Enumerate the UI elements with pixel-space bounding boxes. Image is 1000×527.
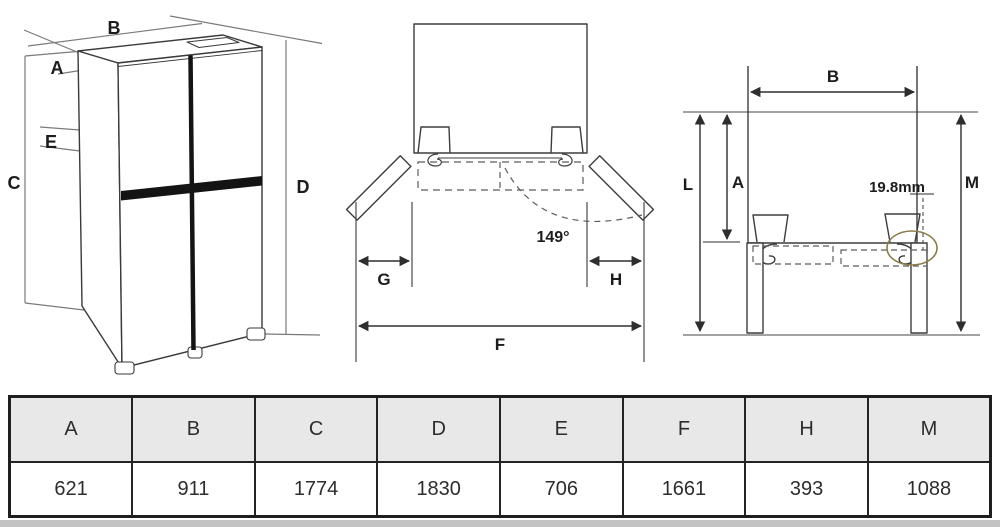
value-h: 393 [745, 462, 868, 517]
label-opening-angle: 149° [536, 229, 569, 246]
fridge-top-outline [347, 24, 654, 220]
value-d: 1830 [377, 462, 500, 517]
clearance-top-view-diagram: B L A M 19.8mm [683, 66, 980, 335]
label-dim-e: E [45, 132, 57, 152]
label-dim-l: L [683, 175, 693, 194]
doors-open-top-view-diagram: G H F 149° [347, 24, 654, 362]
col-header-f: F [623, 397, 746, 463]
value-e: 706 [500, 462, 623, 517]
label-dim-h: H [610, 270, 622, 289]
dim-line-d [264, 40, 320, 335]
label-dim-b: B [108, 18, 121, 38]
table-header-row: A B C D E F H M [10, 397, 991, 463]
label-dim-c: C [8, 173, 21, 193]
col-header-m: M [868, 397, 991, 463]
dimension-diagrams: B A E C D [0, 0, 1000, 395]
left-hinge-hook [428, 154, 441, 166]
appliance-dimension-sheet: B A E C D [0, 0, 1000, 527]
fridge-side-face [78, 51, 122, 368]
front-right-foot [247, 328, 265, 340]
right-door-90deg [911, 243, 927, 333]
value-b: 911 [132, 462, 255, 517]
label-dim-a: A [732, 173, 744, 192]
value-c: 1774 [255, 462, 378, 517]
front-left-foot [115, 362, 134, 374]
ghf-dimension-arrows [359, 261, 641, 326]
label-dim-d: D [297, 177, 310, 197]
cabinet-outline [414, 24, 587, 153]
label-dim-g: G [377, 270, 390, 289]
vertical-door-divider [191, 56, 194, 351]
right-hinge-bracket [885, 214, 920, 242]
value-m: 1088 [868, 462, 991, 517]
left-hinge-bracket [753, 215, 788, 242]
col-header-h: H [745, 397, 868, 463]
col-header-c: C [255, 397, 378, 463]
label-dim-m: M [965, 173, 979, 192]
cabinet-and-doors [747, 66, 927, 333]
dimension-table: A B C D E F H M 621 911 1774 1830 706 16… [8, 395, 992, 518]
value-a: 621 [10, 462, 133, 517]
dim-c-ticks [25, 52, 84, 311]
label-hinge-offset: 19.8mm [869, 179, 925, 196]
right-hinge-hook [559, 154, 572, 166]
label-dim-b: B [827, 67, 839, 86]
left-door-90deg [747, 243, 763, 333]
col-header-d: D [377, 397, 500, 463]
col-header-a: A [10, 397, 133, 463]
col-header-b: B [132, 397, 255, 463]
table-value-row: 621 911 1774 1830 706 1661 393 1088 [10, 462, 991, 517]
page-bottom-edge [0, 520, 1000, 527]
value-f: 1661 [623, 462, 746, 517]
label-dim-a: A [51, 58, 64, 78]
fridge-3d-body [78, 35, 265, 374]
perspective-view-diagram: B A E C D [8, 16, 323, 374]
label-dim-f: F [495, 335, 505, 354]
col-header-e: E [500, 397, 623, 463]
